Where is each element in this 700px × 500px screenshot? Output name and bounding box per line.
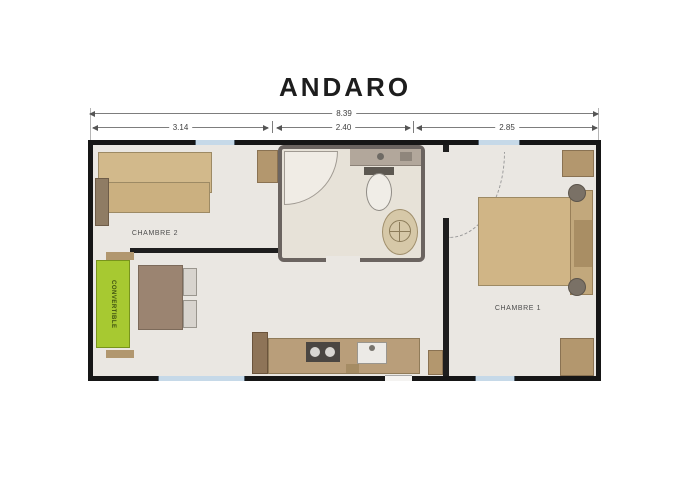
kitchen-box: [346, 364, 359, 373]
wall-chambre1-top: [443, 145, 449, 152]
wall-chambre2-bottom: [130, 248, 280, 253]
bathroom: [278, 145, 425, 262]
window-top-right: [478, 140, 520, 145]
burner-2: [325, 347, 335, 357]
fridge: [252, 332, 268, 374]
nightstand-chambre2: [95, 178, 109, 226]
single-bed-2: [108, 182, 210, 213]
dimension-segment-1: 3.14: [93, 127, 268, 128]
faucet-icon: [377, 153, 384, 160]
sink-faucet-icon: [369, 345, 375, 351]
corner-shower-icon: [284, 151, 338, 205]
round-nightstand-bottom: [568, 278, 586, 296]
entrance-door: [385, 375, 412, 381]
convertible-sofa: CONVERTIBLE: [96, 260, 130, 348]
chambre2-label: CHAMBRE 2: [100, 230, 210, 237]
kitchen-counter: [268, 338, 420, 374]
dimension-total: 8.39: [90, 113, 598, 114]
arrow-right-icon: [405, 125, 411, 131]
bathroom-accessory: [400, 152, 412, 161]
headboard-panel: [574, 220, 592, 267]
wardrobe-chambre2: [257, 150, 278, 183]
round-nightstand-top: [568, 184, 586, 202]
arrow-left-icon: [92, 125, 98, 131]
round-washbasin-icon: [382, 209, 418, 255]
dimension-tick: [272, 121, 273, 133]
two-burner-hob-icon: [306, 342, 340, 362]
plan-title: ANDARO: [0, 72, 690, 103]
wardrobe-chambre1-bottom: [560, 338, 594, 376]
plan-outline: CHAMBRE 2 CHAMBRE 1: [88, 140, 601, 381]
floorplan-canvas: ANDARO 8.39 3.14 2.40 2.85: [0, 0, 700, 500]
washbasin-cross-h: [390, 231, 410, 232]
sofa-armrest-bottom: [106, 350, 134, 358]
chambre1-label: CHAMBRE 1: [463, 305, 573, 312]
chair-1: [183, 268, 197, 296]
sofa-label: CONVERTIBLE: [97, 261, 129, 347]
toilet-icon: [366, 173, 392, 211]
wall-chambre1: [443, 218, 449, 376]
chair-2: [183, 300, 197, 328]
arrow-right-icon: [592, 125, 598, 131]
kitchen-end-unit: [428, 350, 443, 375]
window-top-left: [195, 140, 235, 145]
dining-table: [138, 265, 183, 330]
arrow-left-icon: [89, 111, 95, 117]
dimension-segment-3-label: 2.85: [495, 122, 519, 133]
wardrobe-chambre1-top: [562, 150, 594, 177]
arrow-right-icon: [593, 111, 599, 117]
dimension-segment-3: 2.85: [417, 127, 597, 128]
dimension-segment-2: 2.40: [277, 127, 410, 128]
window-bottom-right: [475, 376, 515, 381]
washbasin-cross-v: [399, 222, 400, 242]
dimension-total-label: 8.39: [332, 108, 356, 119]
dimension-tick: [413, 121, 414, 133]
bathroom-door-opening: [326, 256, 360, 262]
dimension-segment-1-label: 3.14: [169, 122, 193, 133]
sofa-armrest-top: [106, 252, 134, 260]
burner-1: [310, 347, 320, 357]
dimension-segment-2-label: 2.40: [332, 122, 356, 133]
window-bottom-left: [158, 376, 245, 381]
kitchen-sink-icon: [357, 342, 387, 364]
arrow-left-icon: [276, 125, 282, 131]
arrow-right-icon: [263, 125, 269, 131]
double-bed: [478, 197, 572, 286]
arrow-left-icon: [416, 125, 422, 131]
